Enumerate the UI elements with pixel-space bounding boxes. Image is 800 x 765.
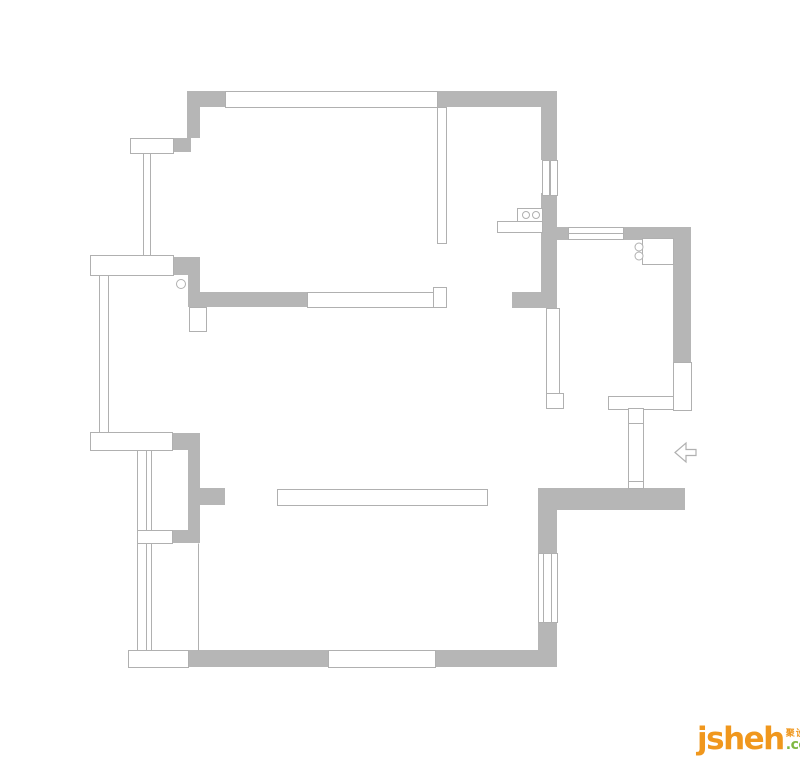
dining-wall-stub bbox=[512, 292, 542, 308]
kitchen-west-window-a bbox=[543, 161, 550, 196]
fixtures-group bbox=[177, 212, 644, 289]
west-wall-lower bbox=[188, 445, 200, 530]
bay-anchor-upper bbox=[173, 257, 200, 275]
sink-counter bbox=[643, 239, 674, 265]
kitchen-north-wall-left bbox=[557, 227, 569, 240]
entry-south-wall bbox=[538, 488, 685, 510]
kitchen-east-wall bbox=[673, 240, 691, 362]
cooktop-counter bbox=[498, 222, 543, 233]
north-window bbox=[226, 92, 438, 108]
balcony-slab-top bbox=[131, 139, 174, 154]
bay-divider bbox=[138, 531, 173, 544]
east-window bbox=[539, 554, 558, 623]
south-wall-left bbox=[188, 650, 328, 667]
west-wall-jamb bbox=[190, 308, 207, 332]
openings-group bbox=[91, 92, 692, 668]
bay-slab-upper bbox=[91, 256, 174, 276]
sink-circle-2 bbox=[635, 252, 643, 260]
bay-anchor-low bbox=[172, 530, 200, 543]
bedroom-south-opening bbox=[308, 293, 439, 308]
bay-slab-bottom bbox=[129, 651, 189, 668]
east-wall-lower bbox=[538, 622, 557, 667]
bedroom-south-wall bbox=[200, 292, 307, 307]
logo-tld-text: .com bbox=[786, 739, 800, 752]
hall-thin-wall bbox=[547, 309, 560, 394]
bedroom-door-pivot bbox=[177, 280, 186, 289]
west-wall-upper bbox=[187, 107, 200, 138]
sink-circle-1 bbox=[635, 243, 643, 251]
floorplan-drawing bbox=[0, 0, 800, 765]
entry-door bbox=[629, 409, 644, 489]
bedroom-partition bbox=[438, 108, 447, 244]
living-beam bbox=[278, 490, 488, 506]
north-wall-right bbox=[437, 91, 557, 107]
walls-group bbox=[172, 91, 691, 667]
jsheh-logo: jsheh 聚设汇 .com bbox=[697, 726, 800, 752]
cooktop-burner-2 bbox=[533, 212, 540, 219]
north-wall-left bbox=[187, 91, 225, 107]
east-wall-outline bbox=[674, 363, 692, 411]
bay-slab-mid bbox=[91, 433, 173, 451]
cooktop-burner-1 bbox=[523, 212, 530, 219]
partition-notch bbox=[434, 288, 447, 308]
kitchen-west-window-b bbox=[551, 161, 558, 196]
kitchen-west-wall-lower bbox=[541, 193, 557, 308]
logo-right-block: 聚设汇 .com bbox=[786, 730, 800, 752]
entry-arrow-icon bbox=[675, 443, 696, 462]
logo-brand-text: jsheh bbox=[697, 726, 784, 752]
floorplan-page: jsheh 聚设汇 .com bbox=[0, 0, 800, 765]
living-wall-stub bbox=[200, 488, 225, 505]
south-window bbox=[329, 651, 436, 668]
balcony-anchor-top bbox=[173, 138, 191, 152]
hall-thin-wall-foot bbox=[547, 394, 564, 409]
kitchen-west-wall-upper bbox=[541, 107, 557, 160]
west-wall-mid bbox=[188, 275, 200, 307]
